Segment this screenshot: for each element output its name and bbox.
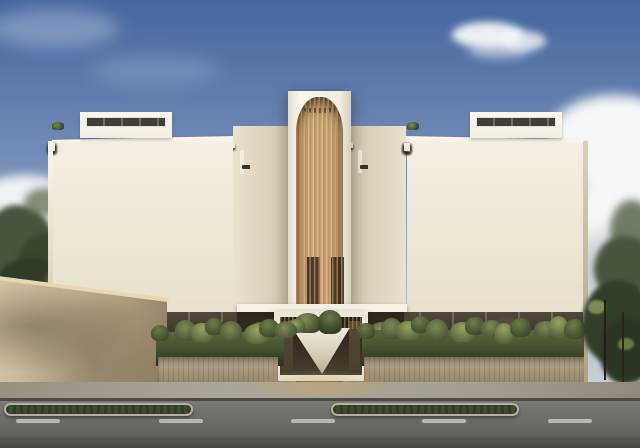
grass-median-right (331, 403, 519, 416)
tree-trunk (622, 312, 624, 382)
arch-slat-tips (304, 108, 335, 113)
balcony-plant (407, 122, 419, 130)
lane-dash (422, 419, 466, 423)
cloud-wisp (90, 55, 220, 85)
architectural-render-scene (0, 0, 640, 448)
penthouse-left (80, 112, 172, 138)
balcony-slab (404, 143, 410, 151)
penthouse-window-band (476, 117, 556, 127)
penthouse-window-band (86, 117, 166, 127)
entrance-plant (318, 310, 342, 334)
lane-dash (159, 419, 203, 423)
tree-trunk (604, 300, 606, 380)
lane-dash (548, 419, 592, 423)
cloud-small (468, 42, 530, 58)
road-near-edge (0, 436, 640, 448)
v-shaped-planter (292, 328, 349, 374)
mid-section-left (233, 126, 288, 318)
balcony-plant (52, 122, 64, 130)
stone-planter-wall-right (364, 357, 584, 384)
mid-section-right (351, 126, 406, 318)
window (358, 150, 362, 173)
shrub (220, 321, 242, 343)
window (240, 150, 244, 173)
shrub (357, 323, 375, 339)
grass-median-left (4, 403, 193, 416)
entrance-light-glow (245, 370, 395, 396)
shrub (274, 322, 297, 338)
shrub (151, 325, 169, 341)
shrub (510, 318, 531, 337)
balcony-wing-right (407, 143, 583, 318)
penthouse-right (470, 112, 562, 138)
lane-dash (291, 419, 335, 423)
shrub (426, 319, 448, 341)
lane-dash (16, 419, 60, 423)
